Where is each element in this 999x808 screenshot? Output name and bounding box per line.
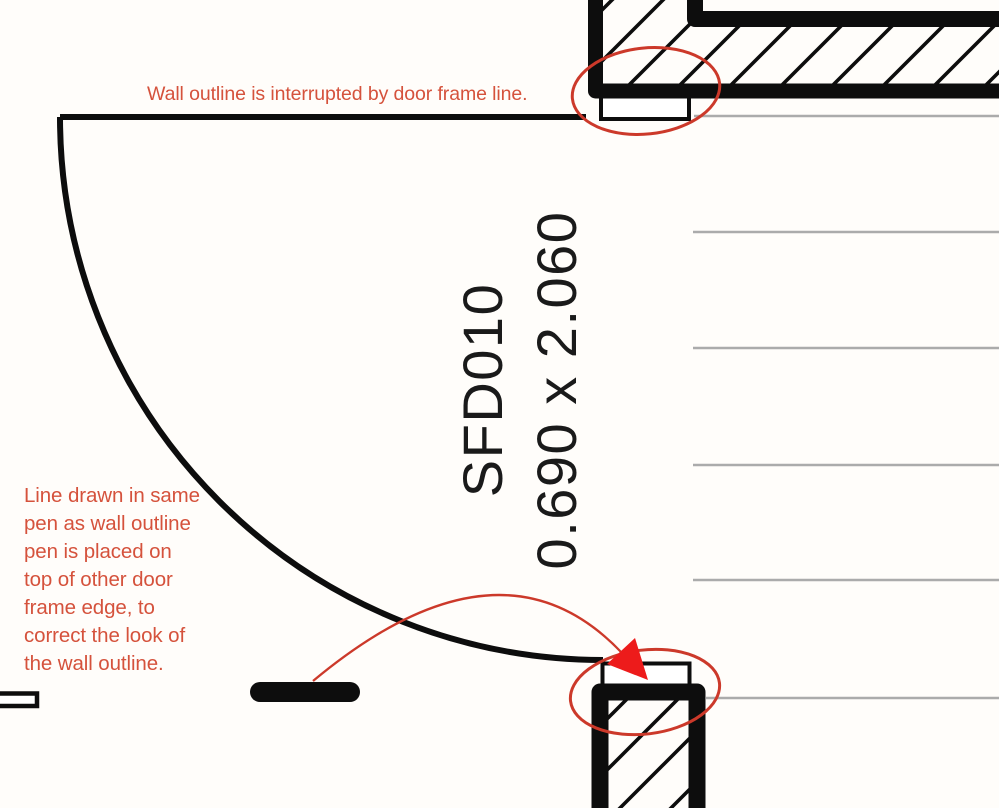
annotation-left-line: pen as wall outline bbox=[24, 510, 200, 538]
left-wall-stub bbox=[0, 694, 37, 707]
door-label: SFD010 0.690 x 2.060 bbox=[446, 30, 596, 750]
annotation-left-line: top of other door bbox=[24, 566, 200, 594]
door-id-label: SFD010 bbox=[446, 30, 520, 750]
annotation-left-line: frame edge, to bbox=[24, 594, 200, 622]
annotation-left-line: the wall outline. bbox=[24, 650, 200, 678]
annotation-left-line: Line drawn in same bbox=[24, 482, 200, 510]
annotation-left-line: correct the look of bbox=[24, 622, 200, 650]
wall-inner-edge-top bbox=[695, 0, 999, 19]
floor-plan-view: Wall outline is interrupted by door fram… bbox=[0, 0, 999, 808]
floor-guide-lines bbox=[693, 116, 999, 698]
annotation-left-note: Line drawn in same pen as wall outline p… bbox=[24, 482, 200, 678]
door-size-label: 0.690 x 2.060 bbox=[520, 30, 594, 750]
annotation-left-line: pen is placed on bbox=[24, 538, 200, 566]
